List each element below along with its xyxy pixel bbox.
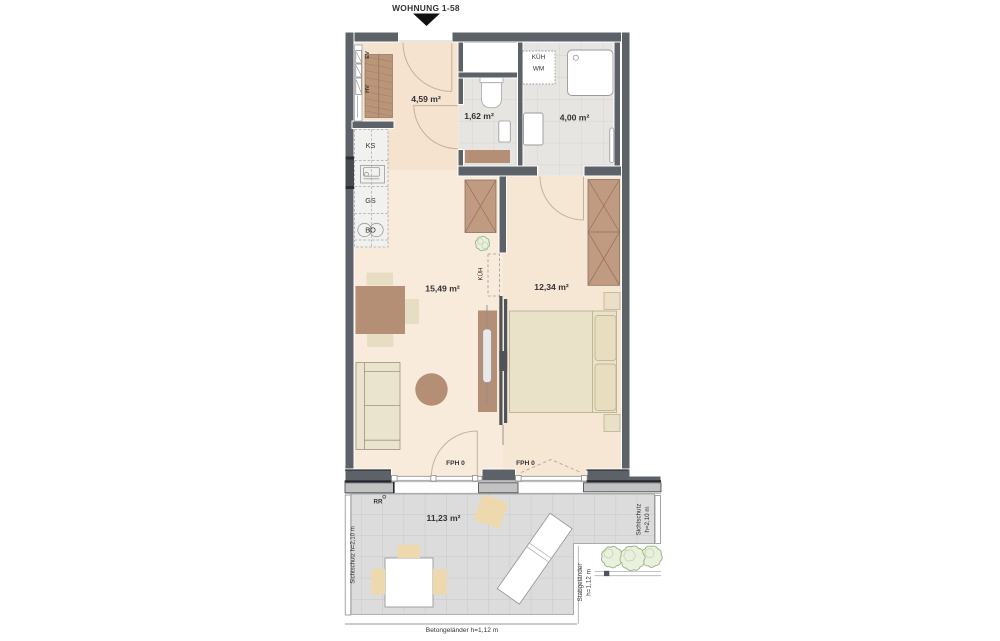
svg-text:Sichtschutz h=2,10 m: Sichtschutz h=2,10 m xyxy=(351,526,357,584)
svg-text:4,59 m²: 4,59 m² xyxy=(411,94,441,104)
svg-text:1,62 m²: 1,62 m² xyxy=(464,111,494,121)
svg-text:Sichtschutz: Sichtschutz xyxy=(636,504,643,536)
svg-text:FPH 0: FPH 0 xyxy=(516,460,535,467)
svg-text:WM: WM xyxy=(533,66,544,73)
svg-text:FPH 0: FPH 0 xyxy=(446,460,465,467)
svg-text:h=1,12 m: h=1,12 m xyxy=(586,569,593,596)
svg-text:15,49 m²: 15,49 m² xyxy=(425,284,460,294)
svg-text:EV: EV xyxy=(365,51,371,59)
svg-text:GS: GS xyxy=(365,196,376,205)
svg-text:Stabgeländer: Stabgeländer xyxy=(577,563,584,602)
svg-text:KS: KS xyxy=(366,141,376,150)
svg-text:KÜH: KÜH xyxy=(532,53,546,61)
svg-text:HV: HV xyxy=(365,85,371,93)
svg-text:KÜH: KÜH xyxy=(478,267,485,280)
svg-text:WOHNUNG 1-58: WOHNUNG 1-58 xyxy=(392,3,460,13)
svg-text:11,23 m²: 11,23 m² xyxy=(427,513,461,523)
svg-text:4,00 m²: 4,00 m² xyxy=(560,113,590,123)
svg-text:12,34 m²: 12,34 m² xyxy=(534,282,569,292)
svg-text:Betongeländer h=1,12 m: Betongeländer h=1,12 m xyxy=(426,627,499,634)
svg-text:h=2,10 m: h=2,10 m xyxy=(644,507,651,533)
svg-text:BO: BO xyxy=(365,226,376,235)
svg-text:RR: RR xyxy=(374,499,383,506)
